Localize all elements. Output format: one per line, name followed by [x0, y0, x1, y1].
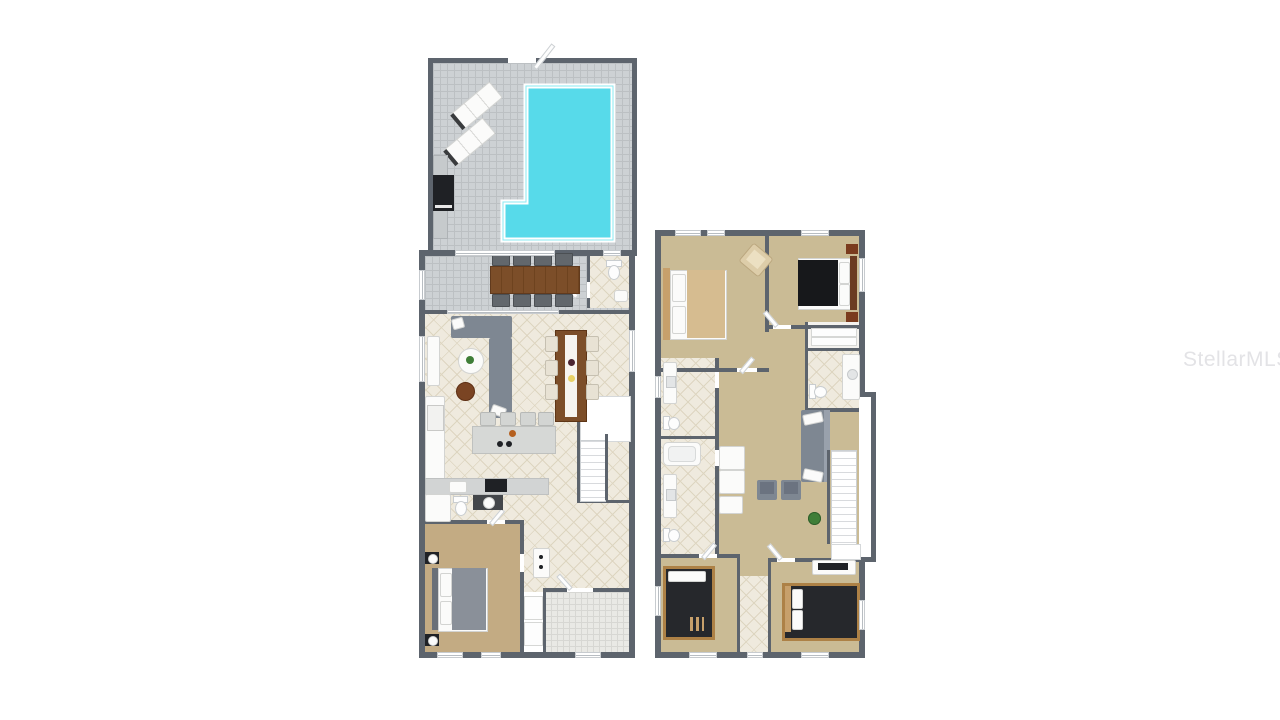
pillow [792, 610, 803, 630]
closet-shelf [811, 328, 857, 337]
toilet-bowl [668, 417, 680, 430]
wall-segment [805, 348, 859, 351]
centerpiece [568, 359, 575, 366]
nightstand [425, 552, 439, 564]
toilet-bowl [814, 386, 827, 398]
pillow [839, 284, 850, 306]
pillow [672, 306, 686, 334]
bar-stool [480, 412, 496, 426]
pillow [440, 573, 452, 597]
closet-shelf [524, 596, 543, 620]
bar-stool [538, 412, 554, 426]
window [707, 230, 725, 236]
kitchen-island [472, 426, 556, 454]
bath-vanity [473, 495, 503, 510]
wall-segment [543, 592, 546, 652]
plant [808, 512, 821, 525]
pillow [839, 262, 850, 284]
stair-landing [831, 544, 861, 560]
primary-bed [432, 568, 486, 630]
bath-vanity [663, 474, 677, 518]
blanket [798, 260, 838, 306]
chair-cushion [746, 249, 766, 269]
lamp [428, 636, 438, 646]
pool-shape [503, 86, 613, 240]
patio-chair [492, 294, 510, 307]
window [419, 270, 425, 300]
water-heater-dial [539, 565, 543, 569]
wall-segment [737, 554, 740, 652]
tub-basin [668, 446, 696, 462]
blanket [452, 568, 486, 630]
plant [466, 356, 474, 364]
powder-sink [614, 290, 628, 302]
staircase [580, 440, 606, 502]
wall-segment [768, 558, 771, 652]
sofa-pillow [802, 411, 824, 426]
toilet-bowl [668, 529, 680, 542]
entry-porch-floor [545, 592, 629, 652]
closet-floor [740, 576, 768, 652]
dining-chair [586, 336, 599, 352]
window [603, 250, 621, 256]
laundry-unit [719, 470, 745, 494]
patio-chair [513, 294, 531, 307]
lamp [428, 554, 438, 564]
window [859, 258, 865, 292]
dresser [812, 560, 856, 575]
water-heater [533, 548, 550, 578]
dining-chair [586, 384, 599, 400]
dresser-top [818, 563, 848, 570]
window [747, 652, 763, 658]
loft-sofa [801, 410, 830, 482]
hall-door-opening [520, 554, 524, 572]
window [859, 600, 865, 630]
gate-opening [508, 58, 536, 63]
patio-dining-table [490, 266, 580, 294]
floor-plan-image: StellarMLS [0, 0, 1280, 720]
closet-shelf [524, 622, 543, 646]
canister [506, 441, 512, 447]
patio-chair [555, 253, 573, 266]
sofa-pillow [802, 468, 824, 483]
kitchen-sink [449, 481, 467, 493]
window [655, 586, 661, 616]
pool [497, 80, 619, 246]
window [655, 376, 661, 398]
pillow [440, 601, 452, 625]
window [689, 652, 717, 658]
toilet-bowl [455, 501, 467, 516]
refrigerator [427, 405, 444, 431]
island-bowl [509, 430, 516, 437]
nightstand [846, 244, 858, 254]
bed-ladder [690, 617, 704, 631]
second-floor-plan [655, 230, 865, 658]
closet-shelf [811, 337, 857, 346]
bath-vanity [842, 354, 860, 400]
window [481, 652, 501, 658]
window [801, 230, 829, 236]
shower [425, 494, 451, 522]
vanity-sink [847, 369, 858, 380]
chair-seat [784, 482, 798, 494]
pool-patio [428, 58, 637, 256]
canister [497, 441, 503, 447]
pillow [672, 274, 686, 302]
chair-seat [760, 482, 774, 494]
gate-door-leaf [533, 43, 555, 70]
window [675, 230, 701, 236]
water-heater-dial [539, 555, 543, 559]
blanket [687, 270, 725, 338]
bedroom-bed [782, 583, 860, 641]
laundry-unit [719, 446, 745, 470]
pillow [792, 589, 803, 609]
side-table [456, 382, 475, 401]
kitchen-tall-cabinets [425, 396, 445, 482]
door-opening [715, 372, 719, 388]
toilet-bowl [608, 265, 620, 280]
loft-chair [781, 480, 801, 500]
bedroom-bed [663, 268, 725, 340]
stair-railing [605, 434, 608, 500]
patio-chair [555, 294, 573, 307]
dining-chair [586, 360, 599, 376]
wall-segment [661, 436, 715, 439]
window [437, 652, 463, 658]
bar-stool [520, 412, 536, 426]
stair-railing [827, 450, 830, 544]
pillow [668, 571, 706, 582]
wall-segment [805, 322, 808, 408]
vanity-sink [483, 497, 495, 509]
bar-stool [500, 412, 516, 426]
headboard [850, 256, 857, 310]
powder-door-opening [587, 282, 590, 298]
headboard [785, 586, 791, 632]
dining-chair [545, 360, 558, 376]
loft-chair [757, 480, 777, 500]
stairwell-bay [859, 392, 876, 562]
lounge-chair-frame [450, 113, 465, 130]
dining-table [555, 330, 587, 422]
patio-chair [534, 294, 552, 307]
watermark: StellarMLS [1183, 348, 1280, 372]
window [801, 652, 829, 658]
grill-knobs [435, 205, 452, 208]
bath-vanity [663, 362, 677, 404]
dining-chair [545, 336, 558, 352]
cooktop [485, 479, 507, 492]
console-table [427, 336, 440, 386]
grill [433, 175, 454, 211]
staircase [831, 450, 857, 546]
window [455, 250, 555, 256]
sliding-glass-door [447, 310, 559, 314]
window [629, 330, 635, 372]
porch-opening [575, 652, 601, 658]
dining-chair [545, 384, 558, 400]
nightstand [846, 312, 858, 322]
first-floor-plan [419, 250, 635, 658]
window [419, 336, 425, 382]
bathtub [663, 442, 701, 466]
vanity-sink [666, 376, 676, 388]
bedroom-bed [663, 566, 715, 640]
vanity-sink [666, 489, 676, 501]
linen-cabinet [719, 496, 743, 514]
bedroom-bed [798, 256, 857, 310]
fruit-bowl [568, 375, 575, 382]
nightstand [425, 634, 439, 646]
headboard [663, 268, 670, 340]
